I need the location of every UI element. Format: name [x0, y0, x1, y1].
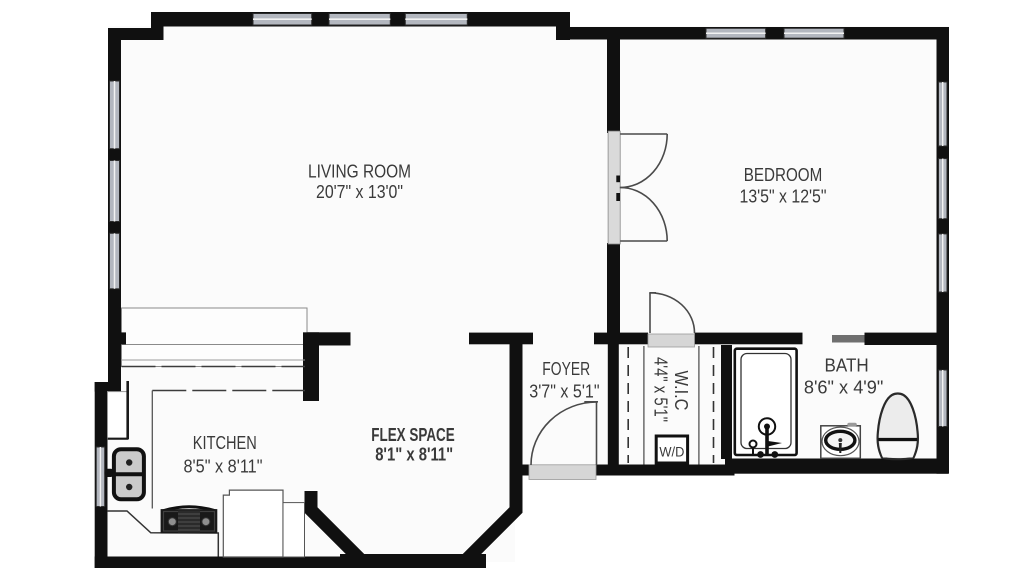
svg-text:BATH: BATH — [825, 356, 869, 376]
svg-text:BEDROOM: BEDROOM — [744, 165, 823, 185]
svg-text:20'7" x 13'0": 20'7" x 13'0" — [316, 182, 403, 202]
svg-text:LIVING ROOM: LIVING ROOM — [308, 161, 411, 181]
svg-text:W.I.C: W.I.C — [671, 371, 691, 411]
svg-text:8'1" x 8'11": 8'1" x 8'11" — [375, 444, 453, 464]
svg-text:W/D: W/D — [659, 444, 684, 460]
svg-text:3'7" x 5'1": 3'7" x 5'1" — [529, 382, 599, 402]
svg-text:KITCHEN: KITCHEN — [193, 433, 257, 453]
svg-text:8'6" x 4'9": 8'6" x 4'9" — [804, 378, 884, 398]
svg-text:FOYER: FOYER — [542, 359, 590, 379]
svg-text:13'5" x 12'5": 13'5" x 12'5" — [740, 186, 827, 206]
svg-text:4'4" x 5'1": 4'4" x 5'1" — [650, 357, 670, 422]
svg-text:8'5" x 8'11": 8'5" x 8'11" — [184, 456, 263, 476]
svg-text:FLEX SPACE: FLEX SPACE — [371, 425, 455, 445]
